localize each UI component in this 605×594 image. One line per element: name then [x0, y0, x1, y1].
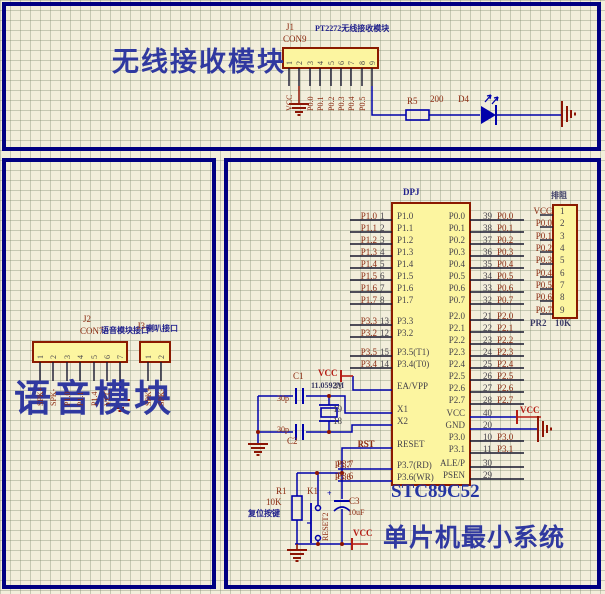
j1-pin-number: 6	[337, 61, 346, 65]
j1-pin-number: 8	[358, 61, 367, 65]
j1-pin-number: 7	[347, 61, 356, 65]
chip-pin-name: GND	[415, 420, 465, 430]
chip-pin-number: 13	[380, 316, 389, 326]
j2-pin-number: 7	[116, 355, 125, 359]
net-label: P3.6	[319, 472, 351, 482]
j2-pin-number: 2	[49, 355, 58, 359]
chip-pin-name: P1.0	[397, 211, 413, 221]
j1-comment-label: PT2272无线接收模块	[315, 24, 389, 33]
j3-pin-number: 1	[144, 355, 153, 359]
chip-pin-name: VCC	[415, 408, 465, 418]
chip-pin-number: 40	[483, 408, 492, 418]
j3-pin-net: SPK-	[157, 389, 166, 406]
net-label: P0.0	[497, 211, 513, 221]
chip-pin-name: P1.7	[397, 295, 413, 305]
net-label: P1.3	[345, 247, 377, 257]
pr2-pin-number: 8	[560, 292, 565, 302]
net-label: P0.5	[497, 271, 513, 281]
j1-pin-number: 3	[306, 61, 315, 65]
net-label: P2.3	[497, 347, 513, 357]
chip-pin-name: P3.0	[415, 432, 465, 442]
net-label: P3.1	[497, 444, 513, 454]
pr2-pin-number: 2	[560, 218, 565, 228]
c2-designator: C2	[287, 436, 298, 446]
j1-pin-number: 1	[285, 61, 294, 65]
net-label: P0.3	[497, 247, 513, 257]
pr2-net-label: P0.1	[524, 231, 552, 241]
net-label: P2.7	[497, 395, 513, 405]
net-label: P1.5	[345, 271, 377, 281]
chip-pin-name: P1.4	[397, 259, 413, 269]
chip-pin-name: X2	[397, 416, 408, 426]
pr2-pin-number: 4	[560, 243, 565, 253]
j3-designator: J3	[137, 321, 145, 331]
chip-pin-number: 14	[380, 359, 389, 369]
pr2-net-label: P0.3	[524, 255, 552, 265]
net-label: P0.1	[497, 223, 513, 233]
j1-pin-net: VCC	[285, 95, 294, 111]
chip-pin-number: 3	[380, 235, 385, 245]
pr2-net-label: P0.7	[524, 305, 552, 315]
chip-part-number: STC89C52	[391, 487, 480, 497]
chip-pin-number: 34	[483, 271, 492, 281]
chip-pin-number: 15	[380, 347, 389, 357]
chip-pin-name: P1.1	[397, 223, 413, 233]
j1-pin-net: P0.3	[337, 97, 346, 111]
j1-pin-number: 9	[368, 61, 377, 65]
net-label: P1.6	[345, 283, 377, 293]
chip-pin-name: X1	[397, 404, 408, 414]
c3-polarity-plus: +	[327, 489, 332, 498]
pr2-pin-number: 3	[560, 231, 565, 241]
chip-pin-number: 37	[483, 235, 492, 245]
chip-pin-number: 4	[380, 247, 385, 257]
chip-pin-number: 7	[380, 283, 385, 293]
reset-button-caption: 复位按键	[248, 509, 280, 518]
net-label: P2.5	[497, 371, 513, 381]
chip-pin-number: 6	[380, 271, 385, 281]
k1-label: RESET2	[321, 513, 330, 541]
j2-pin-net: SPK+	[36, 387, 45, 406]
pr2-net-label: P0.5	[524, 280, 552, 290]
pr2-pin-number: 9	[560, 305, 565, 315]
pr2-net-label: VCC	[524, 206, 552, 216]
chip-pin-number: 11	[483, 444, 492, 454]
chip-pin-name: P1.6	[397, 283, 413, 293]
chip-pin-name: P2.1	[415, 323, 465, 333]
net-label: P2.2	[497, 335, 513, 345]
chip-pin-number: 27	[483, 383, 492, 393]
wireless-module-title: 无线接收模块	[112, 57, 286, 67]
chip-pin-number: 19	[333, 404, 342, 414]
c1-designator: C1	[293, 371, 304, 381]
r1-designator: R1	[276, 486, 287, 496]
r5-designator: R5	[407, 96, 418, 106]
j2-pin-net: SPK-	[49, 389, 58, 406]
pr2-designator: PR2	[530, 318, 547, 328]
net-label: P1.1	[345, 223, 377, 233]
chip-pin-name: P2.6	[415, 383, 465, 393]
pr2-pin-number: 7	[560, 280, 565, 290]
k1-designator: K1	[307, 486, 318, 496]
pr2-net-label: P0.4	[524, 268, 552, 278]
schematic-canvas: 无线接收模块 语音模块 单片机最小系统 J1 CON9 PT2272无线接收模块…	[0, 0, 605, 594]
chip-pin-number: 35	[483, 259, 492, 269]
pr2-comment-label: 排阻	[551, 191, 567, 200]
chip-pin-name: P2.3	[415, 347, 465, 357]
chip-pin-name: P3.1	[415, 444, 465, 454]
chip-pin-number: 8	[380, 295, 385, 305]
chip-pin-name: P2.5	[415, 371, 465, 381]
chip-pin-number: 10	[483, 432, 492, 442]
r5-value: 200	[430, 94, 444, 104]
j2-pin-number: 3	[63, 355, 72, 359]
j1-pin-number: 4	[316, 61, 325, 65]
chip-pin-number: 24	[483, 347, 492, 357]
net-label: P3.7	[319, 460, 351, 470]
chip-pin-name: P0.7	[415, 295, 465, 305]
j3-pin-net: SPK+	[144, 387, 153, 406]
chip-pin-number: 28	[483, 395, 492, 405]
net-label: P3.4	[345, 359, 377, 369]
chip-pin-number: 12	[380, 328, 389, 338]
j1-pin-number: 2	[295, 61, 304, 65]
pr2-pin-number: 5	[560, 255, 565, 265]
mcu-module-title: 单片机最小系统	[383, 534, 565, 544]
net-label: P3.2	[345, 328, 377, 338]
j1-pin-number: 5	[327, 61, 336, 65]
chip-pin-name: P2.0	[415, 311, 465, 321]
chip-pin-number: 33	[483, 283, 492, 293]
chip-pin-name: P0.1	[415, 223, 465, 233]
j3-pin-number: 2	[157, 355, 166, 359]
chip-pin-name: ALE/P	[415, 458, 465, 468]
j1-designator: J1	[286, 22, 294, 32]
chip-pin-number: 23	[483, 335, 492, 345]
chip-pin-number: 2	[380, 223, 385, 233]
j2-pin-net: P1.0	[63, 392, 72, 406]
j1-pin-net: P0.0	[306, 97, 315, 111]
j2-pin-net: P1.1	[76, 392, 85, 406]
c3-designator: C3	[349, 496, 360, 506]
pr2-pin-number: 6	[560, 268, 565, 278]
net-label: P0.4	[497, 259, 513, 269]
chip-pin-name: P2.7	[415, 395, 465, 405]
net-label: P0.6	[497, 283, 513, 293]
vcc-label-ea: VCC	[318, 368, 338, 378]
net-label: P0.2	[497, 235, 513, 245]
j2-pin-net: P1.4	[90, 392, 99, 406]
chip-pin-name: P0.2	[415, 235, 465, 245]
j2-pin-number: 4	[76, 355, 85, 359]
net-label: P2.0	[497, 311, 513, 321]
j2-pin-number: 6	[103, 355, 112, 359]
j2-type: CON7	[80, 326, 104, 336]
chip-pin-number: 38	[483, 223, 492, 233]
pr2-value: 10K	[555, 318, 571, 328]
chip-pin-number: 29	[483, 470, 492, 480]
j2-pin-net: VCC	[103, 390, 112, 406]
chip-pin-name: P2.4	[415, 359, 465, 369]
j1-pin-net: P0.2	[327, 97, 336, 111]
chip-pin-number: 1	[380, 211, 385, 221]
chip-pin-name: P3.2	[397, 328, 413, 338]
chip-pin-name: P1.2	[397, 235, 413, 245]
chip-pin-number: 18	[333, 416, 342, 426]
chip-pin-name: P0.6	[415, 283, 465, 293]
c1-value: 30p	[277, 394, 289, 403]
pr2-pin-number: 1	[560, 206, 565, 216]
chip-pin-number: 20	[483, 420, 492, 430]
net-label: P1.4	[345, 259, 377, 269]
net-label: P2.1	[497, 323, 513, 333]
pr2-net-label: P0.0	[524, 218, 552, 228]
net-label: P2.4	[497, 359, 513, 369]
j3-comment-label: 喇叭接口	[146, 324, 178, 333]
chip-pin-number: 26	[483, 371, 492, 381]
chip-pin-number: 5	[380, 259, 385, 269]
j1-type: CON9	[283, 34, 307, 44]
net-label: P2.6	[497, 383, 513, 393]
c3-value: 10uF	[348, 508, 364, 517]
chip-pin-name: P1.5	[397, 271, 413, 281]
net-label: P3.0	[497, 432, 513, 442]
chip-pin-name: P3.3	[397, 316, 413, 326]
c2-value: 30p	[277, 425, 289, 434]
d4-designator: D4	[458, 94, 469, 104]
chip-pin-name: P0.0	[415, 211, 465, 221]
vcc-label-reset: VCC	[353, 528, 373, 538]
net-label: P1.0	[345, 211, 377, 221]
net-label: P1.2	[345, 235, 377, 245]
net-label: P1.7	[345, 295, 377, 305]
chip-pin-number: 39	[483, 211, 492, 221]
pr2-net-label: P0.2	[524, 243, 552, 253]
chip-pin-name: P1.3	[397, 247, 413, 257]
chip-pin-number: 21	[483, 311, 492, 321]
chip-pin-name: PSEN	[415, 470, 465, 480]
chip-pin-number: 25	[483, 359, 492, 369]
chip-pin-name: P2.2	[415, 335, 465, 345]
net-label: P3.5	[345, 347, 377, 357]
chip-pin-name: P0.5	[415, 271, 465, 281]
chip-pin-number: 31	[333, 381, 342, 391]
net-label: P3.3	[345, 316, 377, 326]
j2-pin-number: 1	[36, 355, 45, 359]
chip-pin-number: 36	[483, 247, 492, 257]
text-overlay: 无线接收模块 语音模块 单片机最小系统 J1 CON9 PT2272无线接收模块…	[0, 0, 605, 594]
net-label: P0.7	[497, 295, 513, 305]
r1-value: 10K	[266, 497, 282, 507]
j1-pin-net: P0.4	[347, 97, 356, 111]
j1-pin-net: P0.5	[358, 97, 367, 111]
chip-pin-name: P0.4	[415, 259, 465, 269]
chip-pin-name: P0.3	[415, 247, 465, 257]
j2-pin-number: 5	[90, 355, 99, 359]
chip-pin-number: 22	[483, 323, 492, 333]
pr2-net-label: P0.6	[524, 292, 552, 302]
net-label: RST	[342, 439, 374, 449]
j1-pin-net: P0.1	[316, 97, 325, 111]
j2-designator: J2	[83, 314, 91, 324]
chip-pin-number: 30	[483, 458, 492, 468]
vcc-label-pin40: VCC	[520, 405, 540, 415]
chip-designator: DPJ	[403, 187, 420, 197]
chip-pin-number: 32	[483, 295, 492, 305]
